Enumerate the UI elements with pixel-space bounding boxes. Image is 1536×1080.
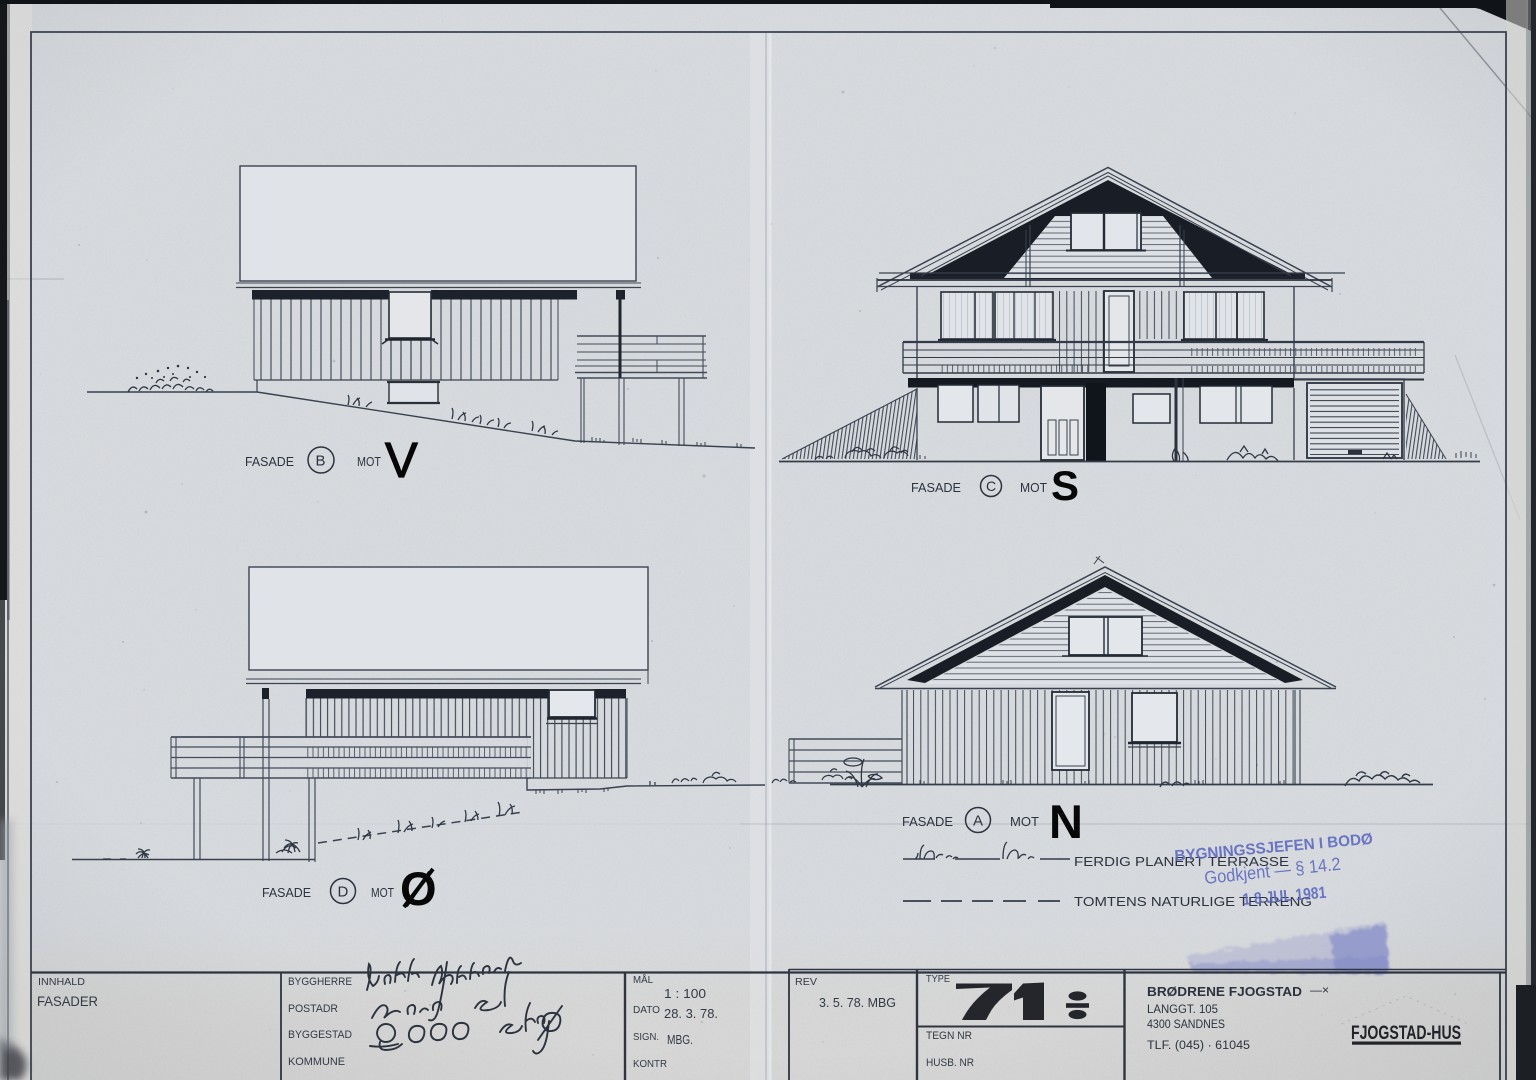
svg-text:28. 3. 78.: 28. 3. 78. [664, 1006, 718, 1021]
svg-text:MOT: MOT [1010, 814, 1039, 829]
svg-text:BYGGESTAD: BYGGESTAD [288, 1029, 352, 1041]
svg-text:DATO: DATO [633, 1004, 660, 1016]
svg-text:KOMMUNE: KOMMUNE [288, 1056, 345, 1068]
svg-text:MOT: MOT [1020, 480, 1047, 495]
svg-text:4300 SANDNES: 4300 SANDNES [1147, 1019, 1225, 1031]
svg-text:FASADER: FASADER [37, 993, 98, 1009]
svg-text:—×: —× [1310, 983, 1329, 997]
svg-text:V: V [385, 434, 418, 488]
svg-text:B: B [316, 453, 326, 470]
svg-text:1 : 100: 1 : 100 [664, 986, 706, 1001]
svg-text:INNHALD: INNHALD [38, 976, 85, 988]
svg-text:3. 5. 78. MBG: 3. 5. 78. MBG [819, 996, 896, 1010]
svg-text:BRØDRENE FJOGSTAD: BRØDRENE FJOGSTAD [1147, 984, 1302, 999]
svg-text:MOT: MOT [357, 454, 381, 469]
svg-text:D: D [338, 884, 349, 901]
svg-text:FASADE: FASADE [911, 480, 961, 495]
svg-text:TLF. (045) · 61045: TLF. (045) · 61045 [1147, 1040, 1250, 1052]
svg-text:KONTR: KONTR [633, 1058, 667, 1070]
svg-text:S: S [1051, 462, 1079, 509]
svg-text:A: A [973, 813, 983, 830]
svg-text:MBG.: MBG. [667, 1033, 693, 1047]
svg-text:REV: REV [795, 976, 817, 988]
svg-text:C: C [986, 478, 996, 494]
svg-text:FASADE: FASADE [245, 454, 294, 469]
svg-text:TEGN NR: TEGN NR [926, 1030, 972, 1042]
svg-text:SIGN.: SIGN. [633, 1031, 659, 1043]
svg-text:HUSB. NR: HUSB. NR [926, 1057, 974, 1069]
svg-text:N: N [1049, 795, 1083, 848]
svg-text:FASADE: FASADE [902, 814, 953, 829]
svg-text:POSTADR: POSTADR [288, 1003, 338, 1015]
svg-text:FJOGSTAD-HUS: FJOGSTAD-HUS [1351, 1023, 1461, 1044]
svg-text:TYPE: TYPE [926, 973, 950, 985]
svg-text:BYGGHERRE: BYGGHERRE [288, 976, 352, 988]
svg-text:LANGGT. 105: LANGGT. 105 [1147, 1004, 1218, 1016]
svg-text:MOT: MOT [371, 885, 394, 900]
svg-text:FASADE: FASADE [262, 885, 311, 900]
svg-text:MÅL: MÅL [633, 973, 653, 986]
